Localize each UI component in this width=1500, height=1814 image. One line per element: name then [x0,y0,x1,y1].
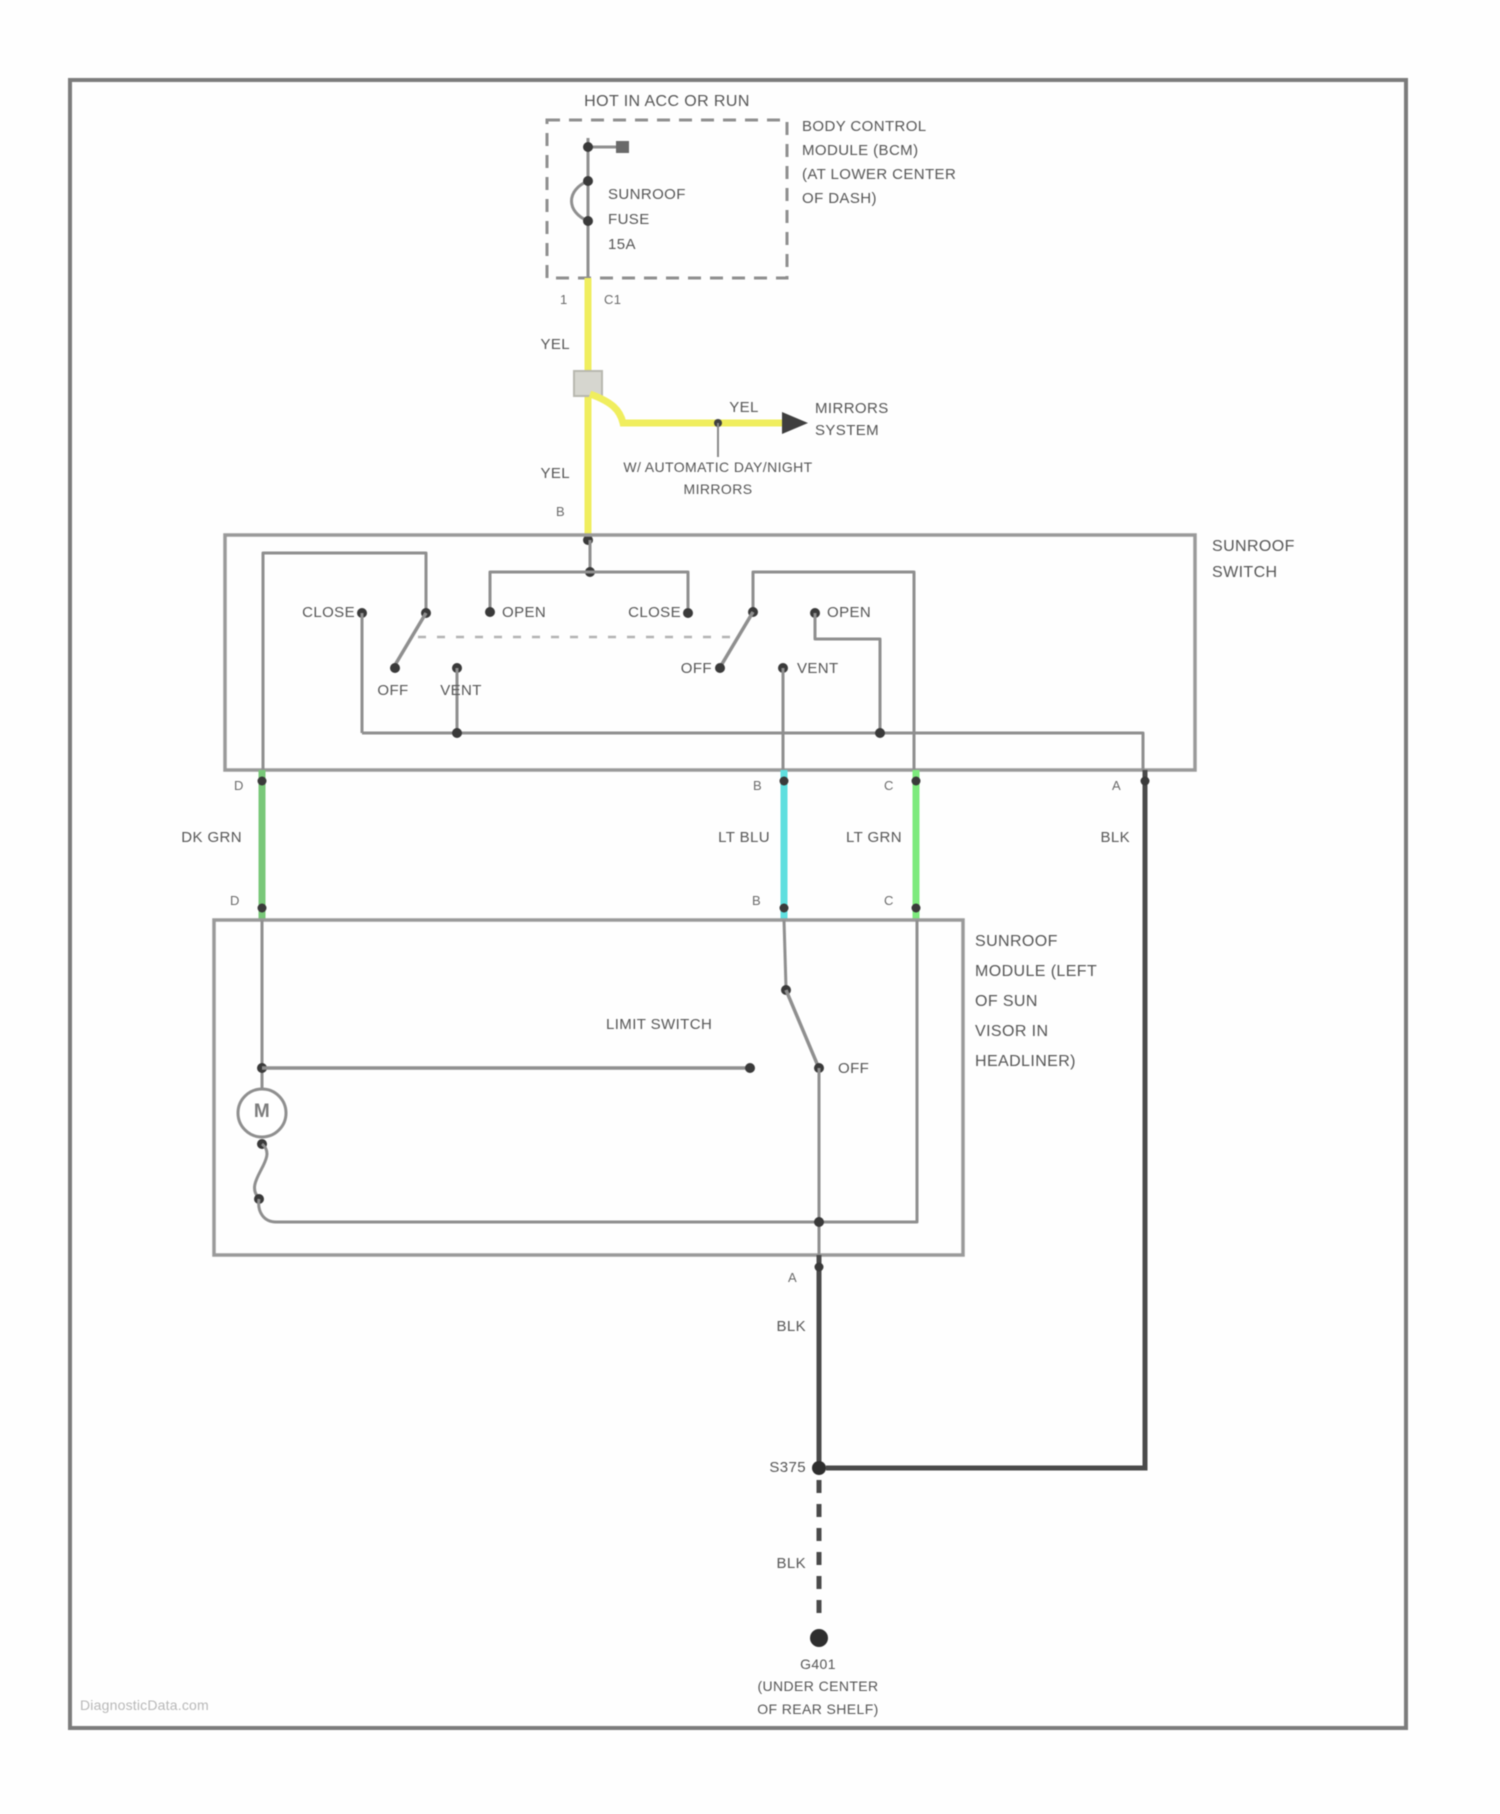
pin-dot [258,904,267,913]
right-close-label: CLOSE [596,604,681,622]
module-title-5: HEADLINER) [975,1052,1076,1071]
yel-label-branch: YEL [718,399,770,417]
module-title-3: OF SUN [975,992,1038,1011]
switch-title-1: SUNROOF [1212,537,1295,556]
blk-label-3: BLK [760,1555,806,1573]
pin-dot [815,1263,824,1272]
dk-grn-label: DK GRN [150,829,242,847]
switch-title-2: SWITCH [1212,563,1278,582]
bcm-label-4: OF DASH) [802,190,877,208]
fuse-label-3: 15A [608,236,636,254]
left-open-label: OPEN [502,604,546,622]
bus-junction-2 [875,728,885,738]
right-off-dot [715,663,725,673]
splice-dot [812,1461,826,1475]
mirrors-note-2: MIRRORS [588,481,848,498]
fuse-dot-bottom [583,216,593,226]
bcm-connector-id: C1 [604,292,621,308]
module-title-2: MODULE (LEFT [975,962,1097,981]
module-title-1: SUNROOF [975,932,1058,951]
mirrors-system-label-2: SYSTEM [815,422,879,440]
yel-label-2: YEL [490,465,570,483]
ground-location-1: (UNDER CENTER [718,1678,918,1695]
feed-terminal [616,141,629,153]
lt-grn-label: LT GRN [810,829,902,847]
module-blade [786,990,818,1066]
pin-dot [780,777,789,786]
left-vent-label: VENT [430,682,492,700]
left-blade-common-wire [263,553,426,770]
ground-point-icon [810,1629,828,1647]
left-open-contact [485,607,495,617]
limit-contact [745,1063,755,1073]
switch-pin-d: D [234,778,244,794]
bcm-label-1: BODY CONTROL [802,118,927,136]
left-off-dot [390,663,400,673]
yel-label-1: YEL [490,336,570,354]
switch-ground-bus [362,733,1143,770]
bcm-label-2: MODULE (BCM) [802,142,918,160]
lt-blu-label: LT BLU [678,829,770,847]
bus-junction-1 [452,728,462,738]
pin-dot [258,777,267,786]
sunroof-module-box [214,920,963,1255]
module-pin-a: A [788,1270,797,1286]
power-source-label: HOT IN ACC OR RUN [537,92,797,111]
fuse-label-2: FUSE [608,211,650,229]
left-off-label: OFF [368,682,418,700]
mirrors-arrow-icon [782,412,808,434]
switch-pin-b: B [753,778,762,794]
blk-label-2: BLK [760,1318,806,1336]
left-close-label: CLOSE [270,604,355,622]
module-ground-junction [814,1217,824,1227]
switch-pin-in: B [556,504,565,520]
right-vent-label: VENT [797,660,839,678]
switch-pin-c: C [884,778,894,794]
page-border [70,80,1406,1728]
pin-dot [912,777,921,786]
right-close-contact [683,608,693,618]
watermark: DiagnosticData.com [80,1697,209,1714]
ground-id-label: G401 [738,1656,898,1673]
bcm-label-3: (AT LOWER CENTER [802,166,956,184]
junction-dot [583,142,593,152]
splice-label: S375 [752,1459,806,1477]
sunroof-wiring-diagram: HOT IN ACC OR RUN SUNROOF FUSE 15A BODY … [0,0,1500,1814]
module-blade-feed [784,920,786,988]
fuse-label-1: SUNROOF [608,186,686,204]
mirrors-system-label-1: MIRRORS [815,400,889,418]
ground-location-2: OF REAR SHELF) [718,1701,918,1718]
right-off-label: OFF [660,660,712,678]
splice-block [574,371,602,396]
wiring-diagram-page: HOT IN ACC OR RUN SUNROOF FUSE 15A BODY … [0,0,1500,1814]
fuse-dot-top [583,176,593,186]
right-open-label: OPEN [827,604,871,622]
blk-wire-switch [826,770,1145,1468]
diagram-canvas [0,0,1500,1814]
left-blade [395,613,426,665]
module-pin-c: C [884,893,894,909]
pin-dot [780,904,789,913]
fuse-element [572,181,589,221]
mirrors-note-1: W/ AUTOMATIC DAY/NIGHT [588,459,848,476]
module-pin-b: B [752,893,761,909]
limit-switch-label: LIMIT SWITCH [606,1016,712,1034]
motor-label: M [250,1101,274,1124]
service-loop [255,1144,267,1198]
sunroof-switch-box [225,535,1195,770]
pin-dot [1141,777,1150,786]
bcm-pin-number: 1 [560,292,568,308]
pin-dot [912,904,921,913]
blk-label-1: BLK [1040,829,1130,847]
module-title-4: VISOR IN [975,1022,1048,1041]
module-off-label: OFF [838,1060,869,1078]
module-pin-d: D [230,893,240,909]
switch-pin-a: A [1112,778,1121,794]
